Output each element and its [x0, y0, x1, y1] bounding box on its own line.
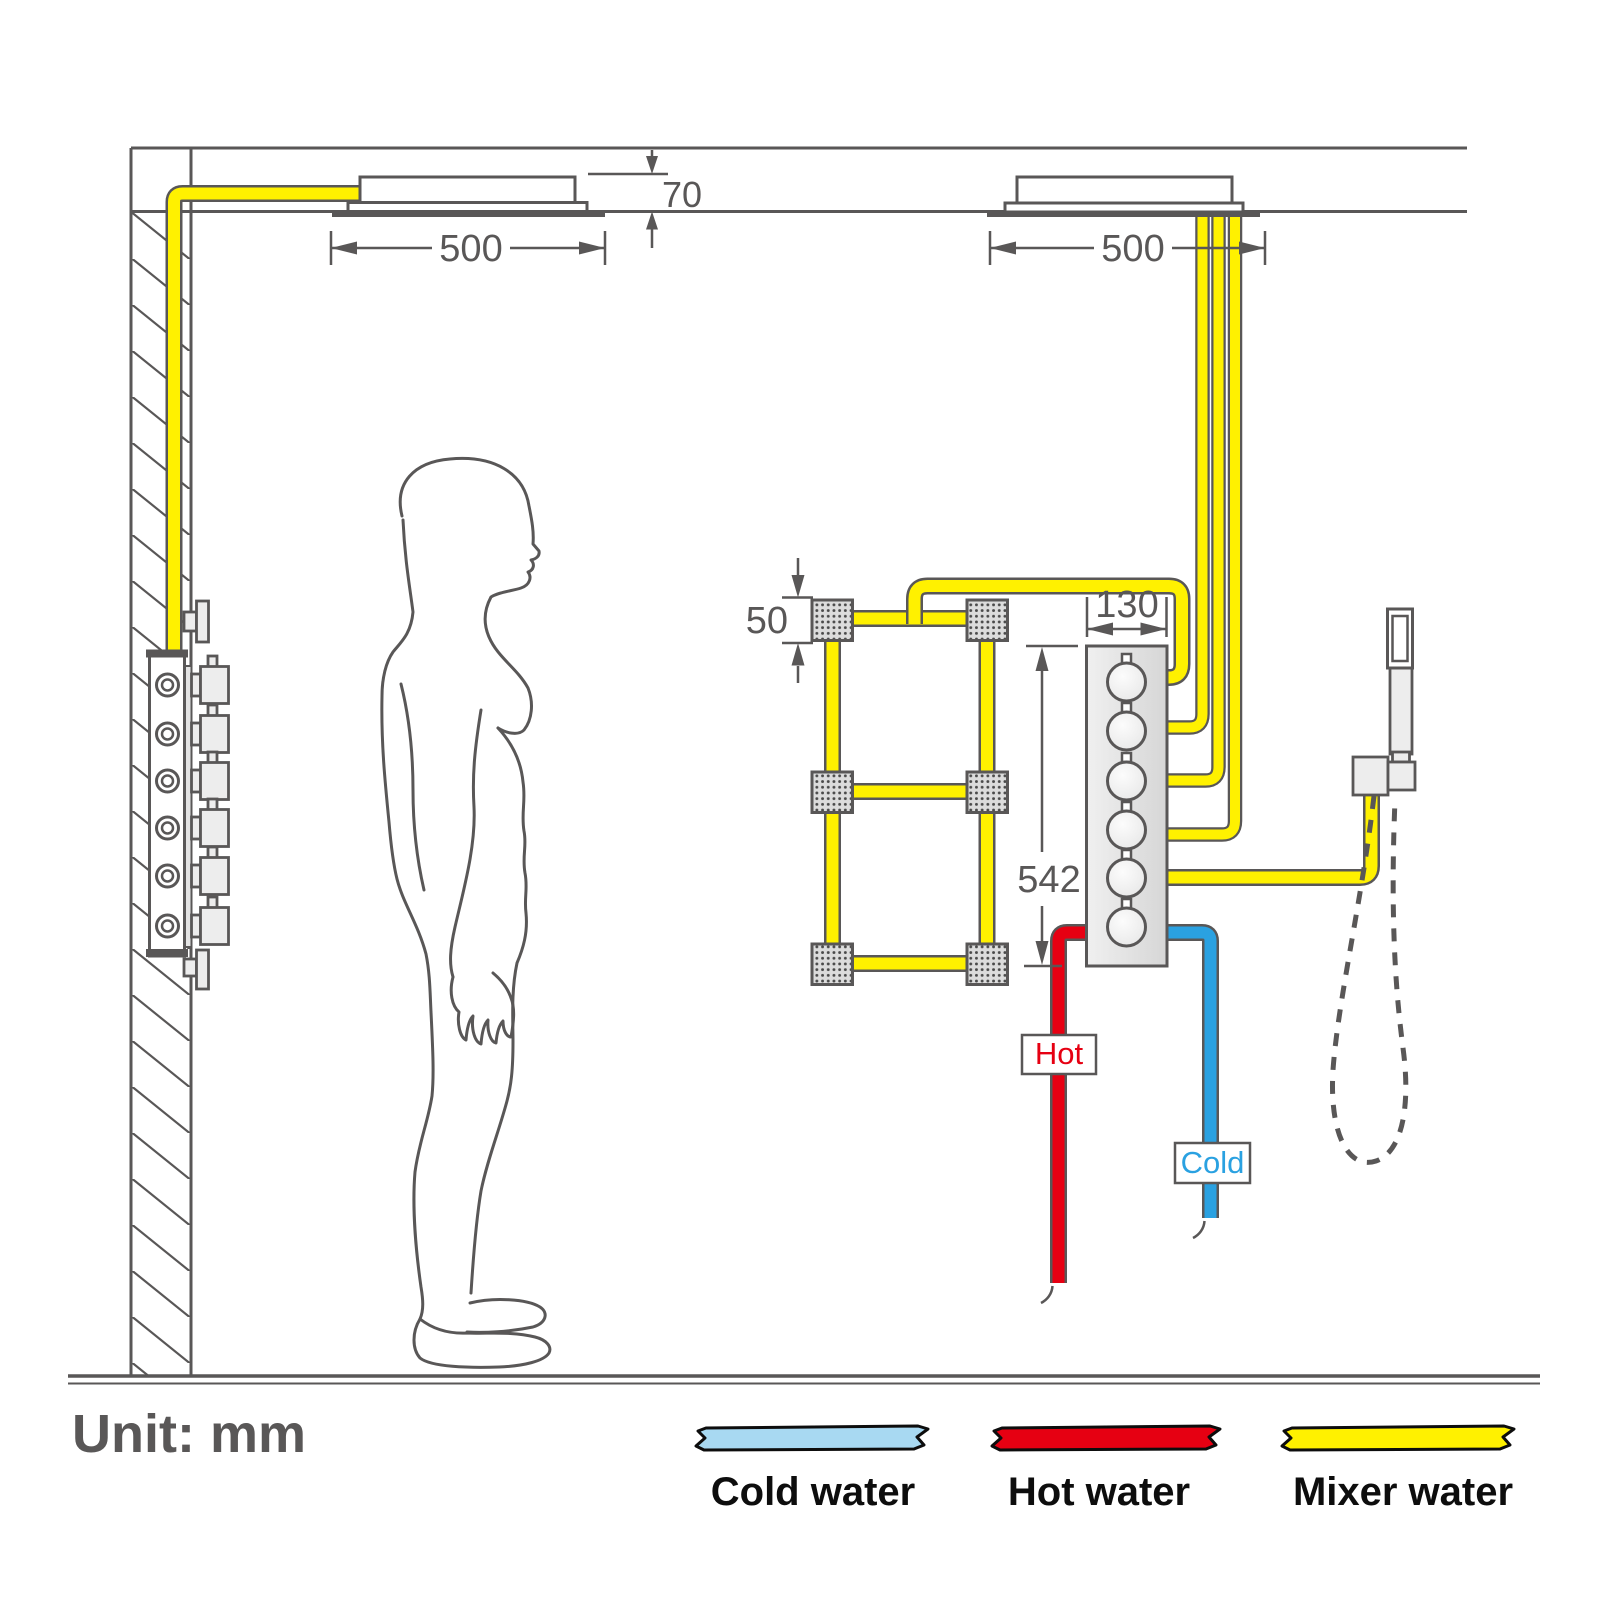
panel-bottom-handle — [197, 950, 209, 989]
person-head-chest — [400, 458, 539, 733]
rain-shower-head-right — [987, 177, 1260, 217]
dim-right-head-width-value: 500 — [1101, 228, 1164, 270]
pipe-hot — [1059, 933, 1161, 1284]
person-foot-upper — [467, 1300, 545, 1333]
handle-block — [201, 763, 229, 800]
handheld-wand-body — [1390, 666, 1412, 754]
dim-valve-width-value: 130 — [1095, 584, 1158, 626]
body-jet — [812, 600, 853, 641]
head-left-flange — [348, 203, 587, 212]
body-jet — [812, 944, 853, 985]
panel-side-handles — [192, 656, 229, 945]
head-right-body — [1017, 177, 1232, 203]
dim-head-recess-height-value: 70 — [662, 174, 702, 215]
hot-tag-label: Hot — [1035, 1036, 1084, 1071]
handle-block — [201, 667, 229, 704]
shower-installation-diagram: 500 70 500 50 130 — [0, 0, 1600, 1600]
head-left-body — [360, 177, 575, 203]
legend-swatch-cold — [696, 1426, 928, 1450]
legend-mixer-label: Mixer water — [1293, 1470, 1513, 1514]
pipe-cold-end-tail — [1193, 1221, 1205, 1238]
hot-water-swatch — [992, 1426, 1220, 1450]
panel-knob-center — [162, 680, 173, 691]
mixer-valve — [1087, 646, 1168, 966]
body-jet — [967, 944, 1008, 985]
room-structure — [68, 148, 1540, 1384]
dim-left-head-width-value: 500 — [439, 228, 502, 270]
handle-block — [201, 716, 229, 753]
rain-shower-head-left — [332, 177, 605, 217]
dim-body-jet-size-value: 50 — [746, 600, 788, 642]
valve-knob — [1108, 663, 1146, 701]
legend: Cold water Hot water Mixer water — [696, 1426, 1514, 1514]
panel-knob-center — [162, 729, 173, 740]
person-front-torso-leg — [471, 728, 526, 1293]
valve-knob — [1108, 908, 1146, 946]
mixer-water-pipes — [174, 194, 1372, 964]
panel-body — [150, 653, 185, 956]
dim-left-head-width: 500 — [331, 228, 605, 270]
person-back-leg — [382, 520, 433, 1319]
mixer-water-swatch — [1282, 1426, 1514, 1450]
cold-tag-label: Cold — [1181, 1145, 1245, 1180]
panel-bottom-cap — [146, 949, 188, 957]
dim-valve-height-value: 542 — [1017, 859, 1080, 901]
legend-swatch-mixer — [1282, 1426, 1514, 1450]
legend-cold-label: Cold water — [711, 1470, 915, 1514]
pipe-jet-loop — [833, 619, 988, 964]
panel-top-cap — [146, 650, 188, 658]
valve-knob — [1108, 859, 1146, 897]
handle-block — [201, 810, 229, 847]
body-jet — [967, 772, 1008, 813]
person-front-arm — [451, 710, 481, 977]
person-back-arm — [401, 684, 424, 890]
supply-pipes — [1041, 933, 1211, 1304]
panel-knob-center — [162, 871, 173, 882]
unit-label: Unit: mm — [72, 1404, 306, 1464]
panel-top-handle-stem — [184, 612, 197, 631]
handheld-holder-base — [1353, 757, 1388, 795]
cold-water-swatch — [696, 1426, 928, 1450]
head-right-faceplate — [987, 212, 1260, 218]
handheld-holder-clamp — [1388, 762, 1415, 790]
person-outline — [382, 458, 550, 1367]
head-left-faceplate — [332, 212, 605, 218]
dim-body-jet-size: 50 — [746, 558, 813, 683]
panel-knob-center — [162, 823, 173, 834]
pipe-hot-outline — [1059, 933, 1161, 1284]
panel-knob-center — [162, 776, 173, 787]
dim-valve-width: 130 — [1087, 584, 1167, 637]
body-jet — [812, 772, 853, 813]
handle-block — [201, 858, 229, 895]
diagram-canvas: 500 70 500 50 130 — [0, 0, 1600, 1600]
valve-knob — [1108, 762, 1146, 800]
valve-knob — [1108, 712, 1146, 750]
body-jet — [967, 600, 1008, 641]
dim-valve-height: 542 — [1017, 646, 1080, 966]
footer: Unit: mm Cold water Hot water Mixer wate… — [72, 1404, 1514, 1514]
legend-hot-label: Hot water — [1008, 1470, 1190, 1514]
handheld-wand-face — [1393, 616, 1408, 661]
panel-bottom-handle-stem — [184, 959, 197, 976]
handle-block — [201, 908, 229, 945]
panel-knob-center — [162, 921, 173, 932]
handheld-connector — [1393, 752, 1410, 762]
head-right-flange — [1005, 203, 1243, 212]
valve-knob — [1108, 811, 1146, 849]
pipe-hot-end-tail — [1041, 1286, 1053, 1303]
person-hand — [451, 973, 513, 1044]
panel-top-handle — [197, 601, 209, 642]
legend-swatch-hot — [992, 1426, 1220, 1450]
